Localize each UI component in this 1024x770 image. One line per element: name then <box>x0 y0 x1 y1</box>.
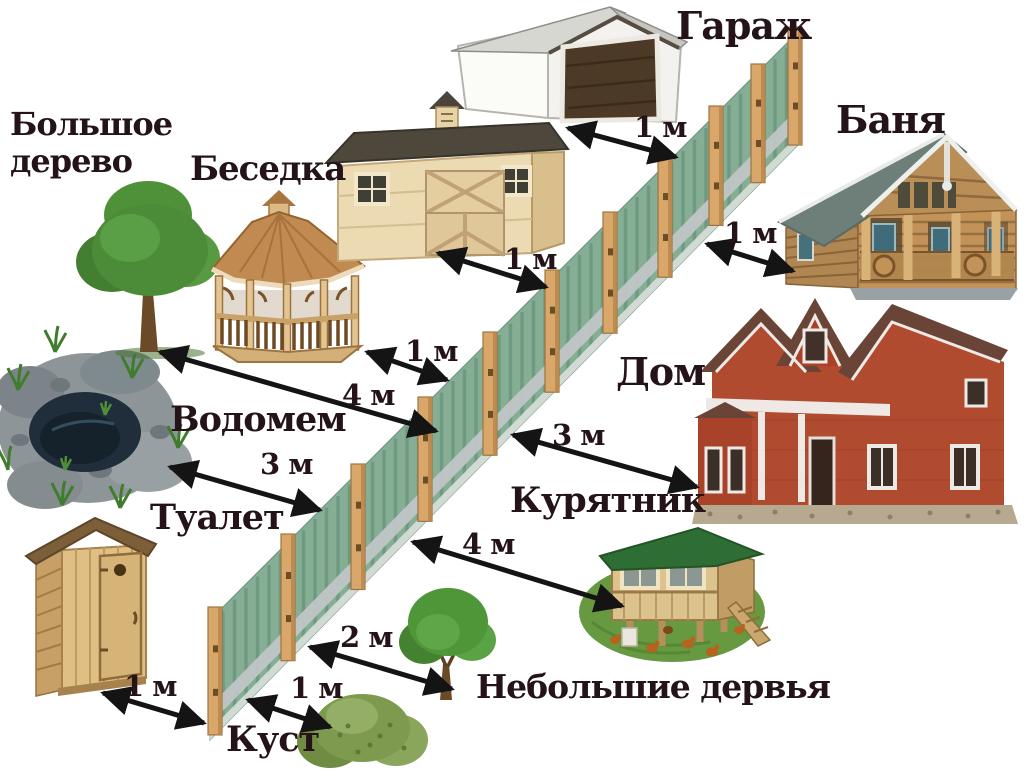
house-illustration <box>692 298 1018 524</box>
chicken-coop-illustration <box>579 528 770 662</box>
distance-toilet-to-fence: 1 м <box>124 669 176 703</box>
garage-illustration <box>451 7 687 122</box>
distance-garage-to-fence: 1 м <box>634 110 686 144</box>
distance-small-trees-to-fence: 2 м <box>340 620 392 654</box>
big-tree-label: Большоедерево <box>10 106 172 180</box>
toilet-label: Туалет <box>150 498 284 539</box>
big-tree-illustration <box>76 181 220 359</box>
distance-coop-to-fence: 4 м <box>462 527 514 561</box>
big-tree-label-line2: дерево <box>10 142 132 180</box>
distance-big-tree-to-fence: 4 м <box>342 378 394 412</box>
big-tree-label-line1: Большое <box>10 105 172 143</box>
bush-label: Куст <box>226 720 319 761</box>
distance-banya-to-fence: 1 м <box>724 216 776 250</box>
banya-label: Баня <box>836 98 945 142</box>
distance-pond-to-fence: 3 м <box>260 447 312 481</box>
garage-label: Гараж <box>676 4 811 48</box>
distance-bush-to-fence: 1 м <box>290 671 342 705</box>
distance-shed-to-fence: 1 м <box>504 242 556 276</box>
banya-illustration <box>779 134 1018 300</box>
house-label: Дом <box>616 350 705 394</box>
pond-label: Водомем <box>170 400 346 441</box>
gazebo-label: Беседка <box>190 150 345 189</box>
distance-gazebo-to-fence: 1 м <box>405 334 457 368</box>
distance-house-to-fence: 3 м <box>552 418 604 452</box>
chicken-coop-label: Курятник <box>510 481 705 522</box>
small-trees-label: Небольшие дервья <box>476 668 830 706</box>
site-plan-diagram: Гараж Баня Большоедерево Беседка Дом Вод… <box>0 0 1024 770</box>
